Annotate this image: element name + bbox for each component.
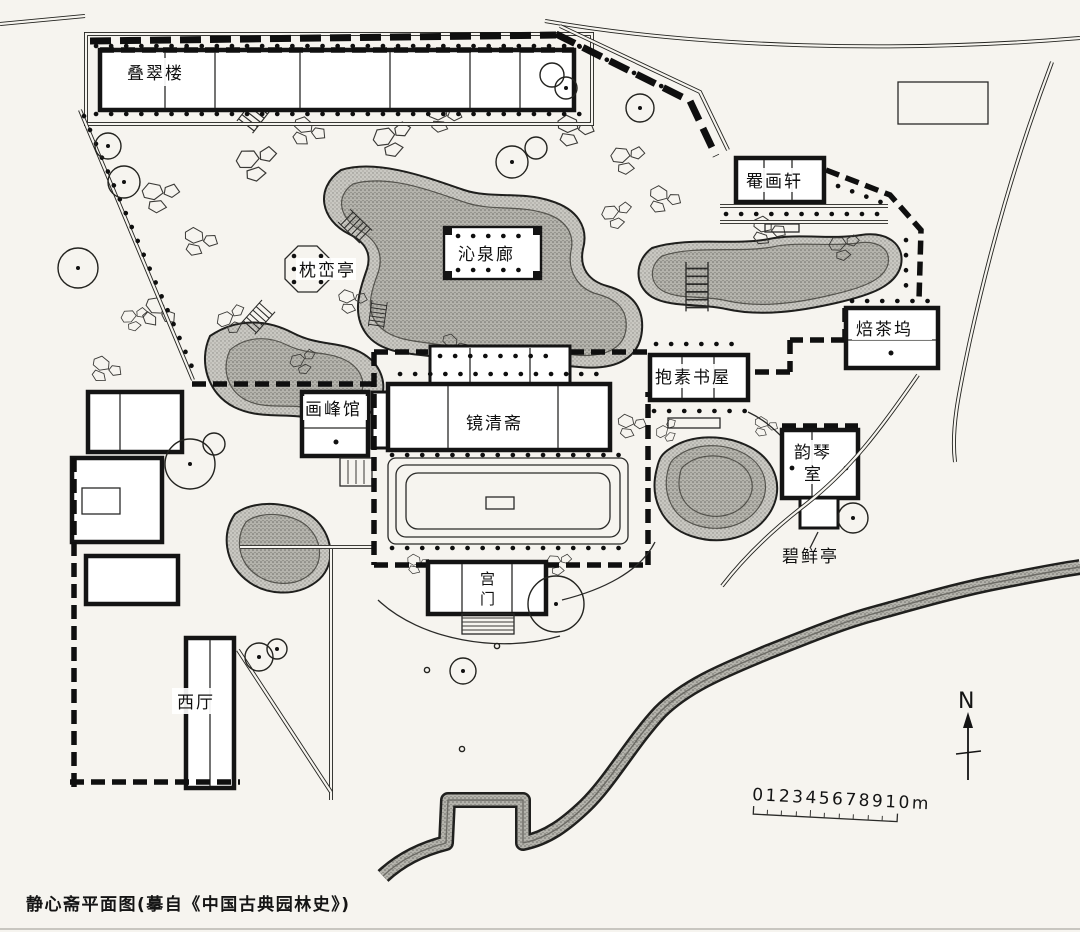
outbuilding-outline bbox=[898, 82, 988, 124]
building-qinquanlang: 沁泉廊 bbox=[444, 227, 541, 279]
label-gongmen-1: 宫 bbox=[480, 570, 496, 588]
pavilion-zhenluanting: 枕峦亭 bbox=[285, 246, 356, 292]
label-qinquanlang: 沁泉廊 bbox=[458, 245, 515, 265]
label-diecuilou: 叠翠楼 bbox=[127, 64, 184, 84]
compass-north: N bbox=[956, 689, 981, 780]
scale-bar: 012345678910m bbox=[751, 785, 931, 823]
caption: 静心斋平面图(摹自《中国古典园林史》) bbox=[26, 894, 351, 915]
building-gongmen: 宫 门 bbox=[378, 562, 560, 644]
label-beichawu: 焙茶坞 bbox=[856, 320, 913, 340]
label-zhenluanting: 枕峦亭 bbox=[299, 261, 356, 281]
jingqingzhai-courtyard: 镜清斋 bbox=[374, 346, 648, 565]
label-bixianting: 碧鲜亭 bbox=[782, 547, 839, 567]
label-yunqinshi-line1: 韵琴 bbox=[794, 443, 832, 463]
building-baosushuwu: 抱素书屋 bbox=[650, 344, 783, 438]
building-yanhuaxuan: 罨画轩 bbox=[720, 158, 888, 232]
scale-bar-label: 012345678910m bbox=[752, 785, 932, 814]
compass-arrowhead bbox=[963, 712, 973, 728]
label-baosushuwu: 抱素书屋 bbox=[655, 368, 731, 388]
label-huafengguan: 画峰馆 bbox=[305, 400, 362, 420]
garden-plan-drawing: 叠翠楼 罨画轩 沁泉廊 枕峦亭 焙茶坞 bbox=[0, 0, 1080, 932]
garden-plan-page: 叠翠楼 罨画轩 沁泉廊 枕峦亭 焙茶坞 bbox=[0, 0, 1080, 932]
label-yunqinshi-line2: 室 bbox=[804, 465, 823, 485]
compass-n-label: N bbox=[958, 689, 974, 714]
label-gongmen-2: 门 bbox=[480, 590, 496, 608]
building-beichawu: 焙茶坞 bbox=[846, 301, 938, 368]
label-jingqingzhai: 镜清斋 bbox=[466, 414, 523, 434]
label-yanhuaxuan: 罨画轩 bbox=[746, 172, 803, 192]
label-xiting: 西厅 bbox=[177, 693, 215, 713]
building-diecuilou: 叠翠楼 bbox=[100, 50, 574, 110]
